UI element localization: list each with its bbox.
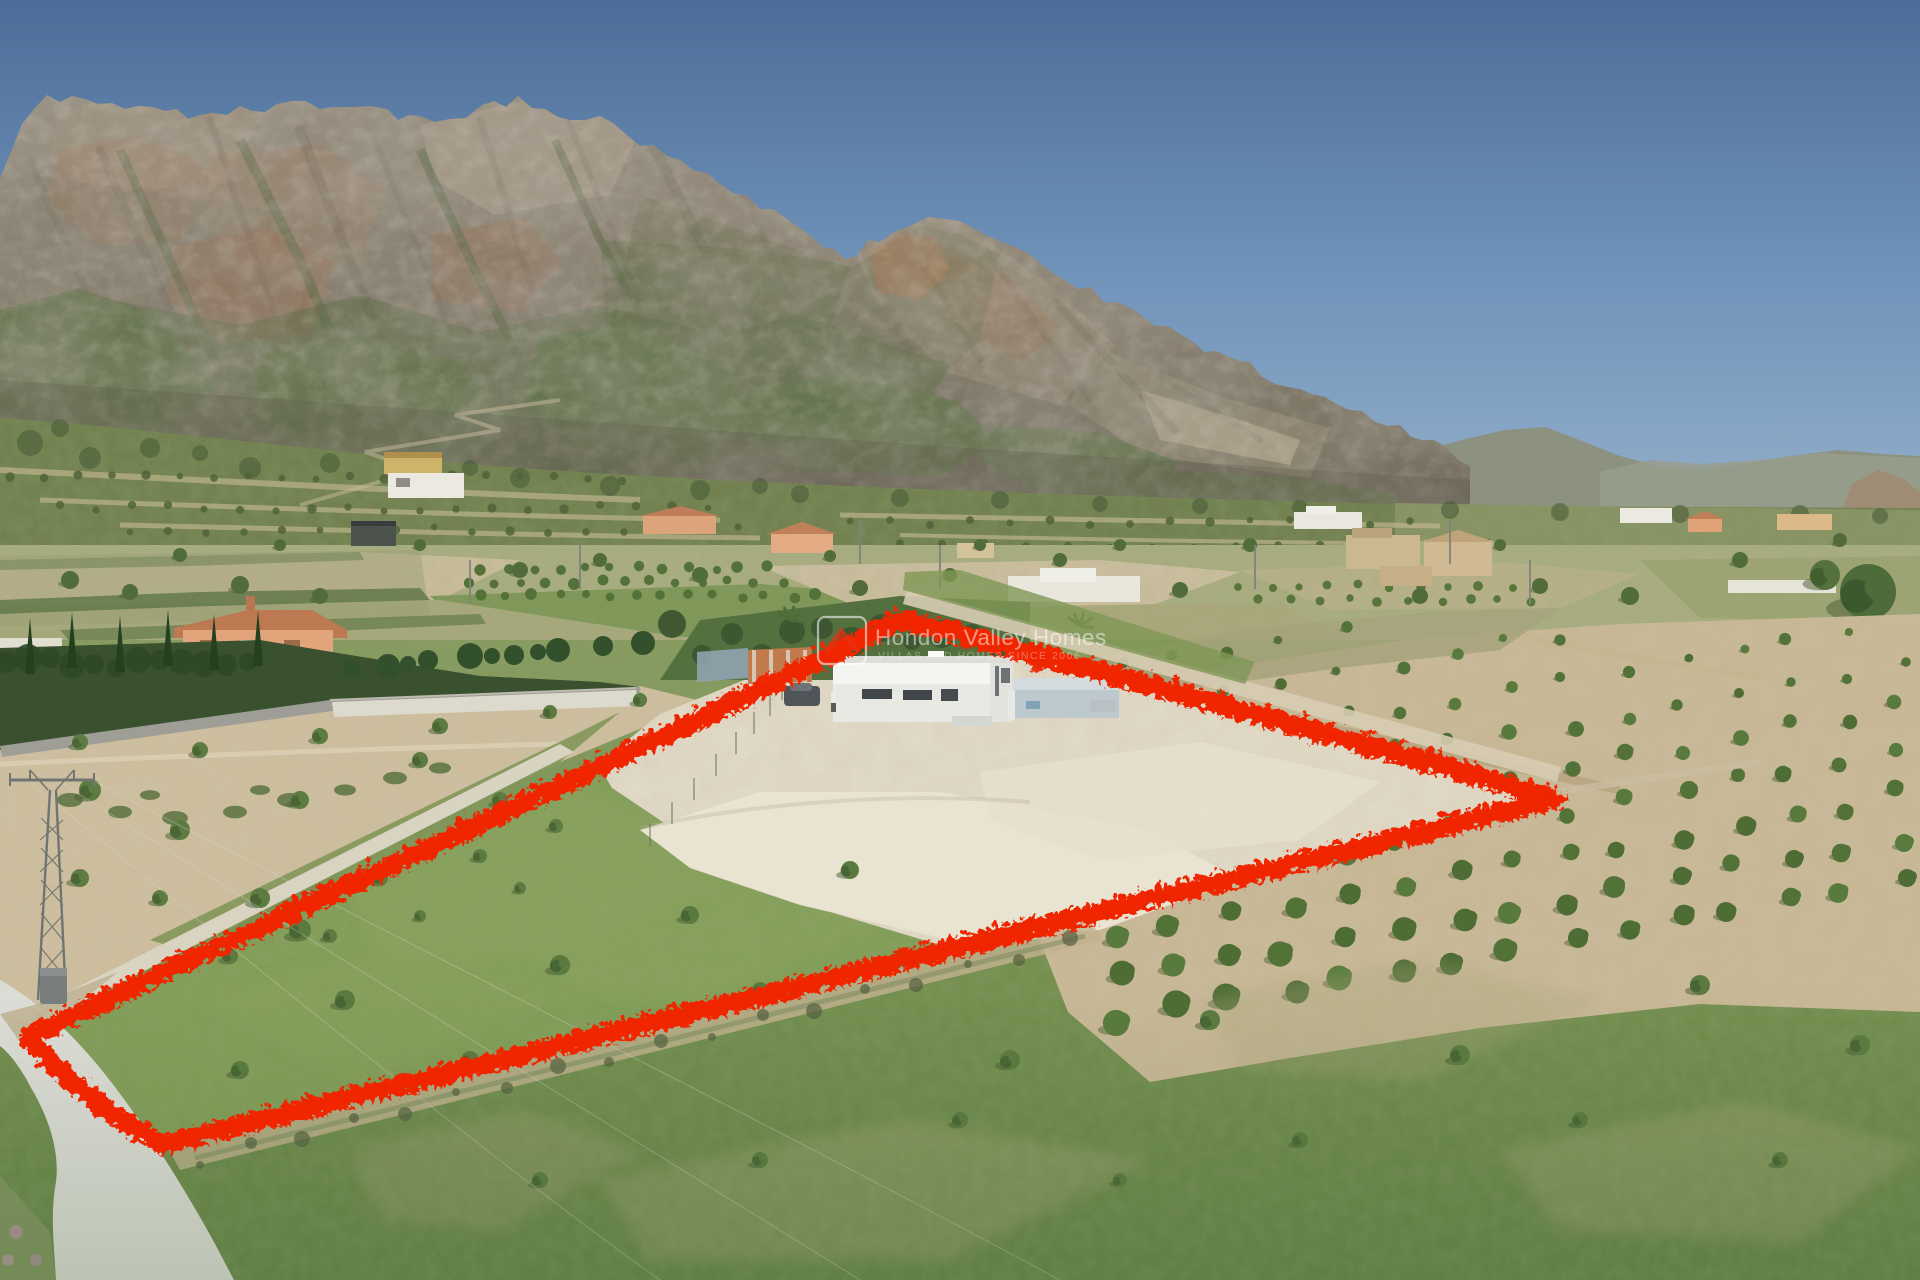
svg-text:Hondon Valley Homes: Hondon Valley Homes — [875, 625, 1107, 650]
svg-text:VILLAS AND HOMES SINCE 2006: VILLAS AND HOMES SINCE 2006 — [878, 650, 1081, 662]
